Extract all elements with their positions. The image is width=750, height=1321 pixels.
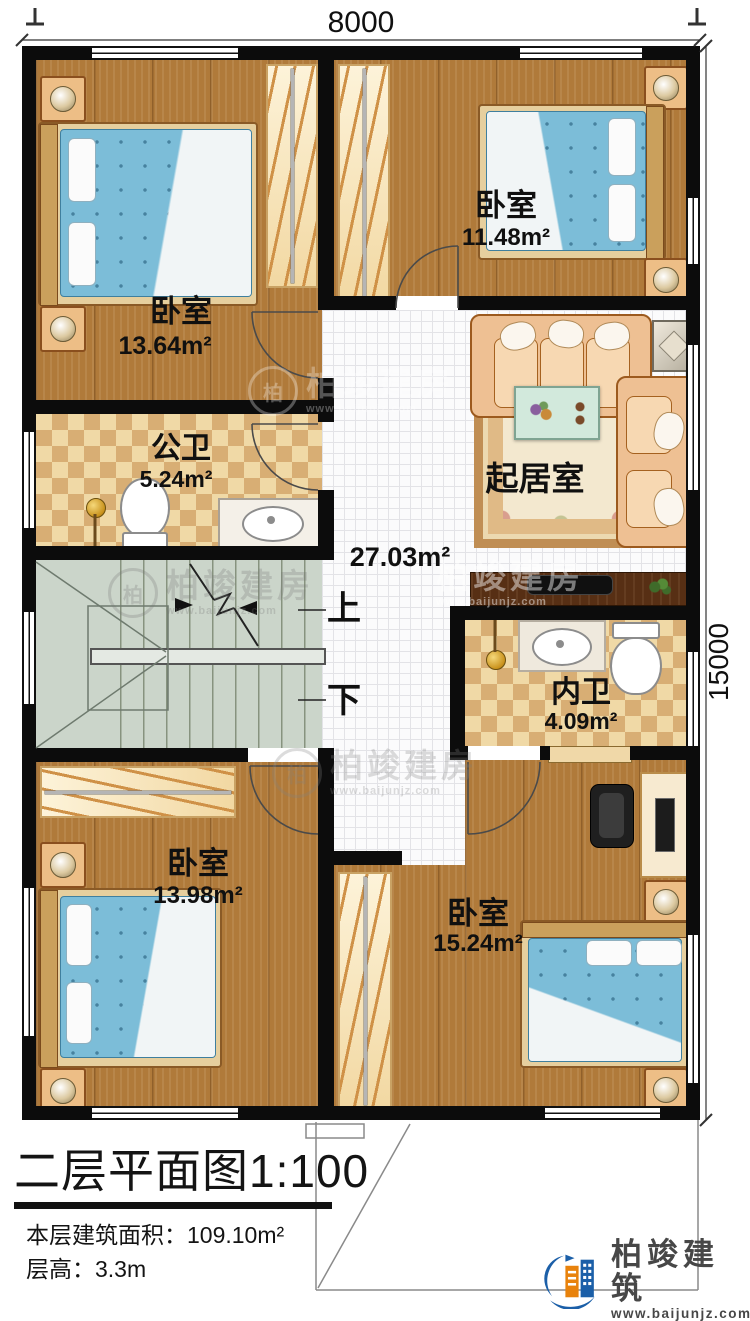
table-cups [572,402,588,426]
wardrobe-bedroom-tl [266,64,318,288]
room-area-bedroom-tl: 13.64m² [118,334,211,359]
tv-screen [527,575,613,595]
wall [318,490,334,546]
info-floor-height-label: 层高： [26,1256,95,1282]
room-area-living: 27.03m² [350,544,451,571]
wall [450,746,468,760]
info-floor-height: 层高：3.3m [26,1258,146,1281]
stair-handrail [90,648,326,665]
bed-pillow [636,940,682,966]
info-floor-area-value: 109.10m² [187,1222,284,1248]
window [686,198,700,264]
sink-basin [242,506,304,542]
bed-headboard [522,922,690,938]
toilet-bowl [610,637,662,695]
shower-head [486,650,506,670]
brand-name: 柏竣建筑 [611,1238,750,1306]
sink-faucet [556,640,564,648]
bed-pillow [66,982,92,1044]
wall [630,746,686,760]
room-label-public-bath: 公卫 [151,434,211,464]
bath-counter [518,620,606,672]
dresser-mirror [655,798,675,852]
bed-pillow [586,940,632,966]
room-label-bedroom-tr: 卧室 [475,190,537,221]
brand-logo-icon [540,1251,601,1309]
sink-faucet [267,516,275,524]
bed-bedroom-bl [38,888,222,1068]
wall [450,606,465,760]
floor-hall [322,310,465,865]
stair-up-label: 上 [327,592,361,626]
room-label-living: 起居室 [486,462,585,495]
wardrobe-bedroom-br [338,872,392,1110]
plant [647,577,673,597]
coffee-table [514,386,600,440]
room-label-bedroom-tl: 卧室 [150,296,212,327]
title-underline [14,1202,332,1209]
room-area-bedroom-tr: 11.48m² [462,226,550,250]
wardrobe-bedroom-bl [40,766,236,818]
stair-down-label: 下 [327,684,361,718]
bed-pillow [66,904,92,966]
window [22,888,36,1036]
bed-pillow [68,138,96,202]
wall [22,748,248,762]
wall [318,851,402,865]
brand-website: www.baijunjz.com [611,1306,750,1321]
room-area-bedroom-bl: 13.98m² [153,884,242,908]
bed-bedroom-tl [38,122,258,306]
wall [318,378,334,422]
wall [334,296,396,310]
bed-headboard [646,106,664,260]
window [686,652,700,746]
bed-headboard [40,890,58,1068]
dimension-right: 15000 [705,612,739,712]
dimension-top: 8000 [22,8,700,38]
wall [318,748,334,1106]
window [686,345,700,490]
brand-logo: 柏竣建筑 www.baijunjz.com [540,1238,750,1321]
tv-cabinet [470,572,688,606]
window [92,46,238,60]
nightstand [40,842,86,888]
door-leaf-ensuite [548,746,632,763]
info-floor-height-value: 3.3m [95,1256,146,1282]
wall [450,606,686,620]
bath-vanity [218,498,332,548]
nightstand [644,880,688,924]
bed-headboard [40,124,58,306]
sofa-two-seat [616,376,696,548]
bed-bedroom-br [520,920,690,1068]
bed-pillow [608,184,636,242]
drawing-scale: 1:100 [249,1145,369,1197]
room-label-bedroom-br: 卧室 [447,898,509,929]
window [22,432,36,528]
shower-head [86,498,106,518]
bed-pillow [608,118,636,176]
wall [540,746,550,760]
nightstand [40,306,86,352]
wall [318,60,334,310]
dresser [640,772,690,878]
floorplan-page: { "dimensions": { "width_top": "8000", "… [0,0,750,1307]
window [545,1106,660,1120]
chair [590,784,634,848]
table-flowers [528,400,554,424]
room-label-bedroom-bl: 卧室 [167,848,229,879]
window [22,612,36,704]
room-area-public-bath: 5.24m² [140,468,213,491]
nightstand [40,76,86,122]
room-area-bedroom-br: 15.24m² [433,932,522,956]
window [92,1106,238,1120]
drawing-title-text: 二层平面图 [14,1145,249,1197]
room-area-ensuite-bath: 4.09m² [545,710,618,733]
wardrobe-bedroom-tr [338,64,390,306]
info-floor-area-label: 本层建筑面积： [26,1222,187,1248]
wall [22,400,334,414]
chair-seat [599,793,624,838]
wall [22,546,334,560]
info-floor-area: 本层建筑面积：109.10m² [26,1224,284,1247]
side-table-inlay [658,330,689,361]
room-label-ensuite-bath: 内卫 [551,678,611,708]
bed-pillow [68,222,96,286]
wall [458,296,686,310]
window [686,935,700,1083]
drawing-title: 二层平面图1:100 [14,1148,369,1194]
window [520,46,642,60]
